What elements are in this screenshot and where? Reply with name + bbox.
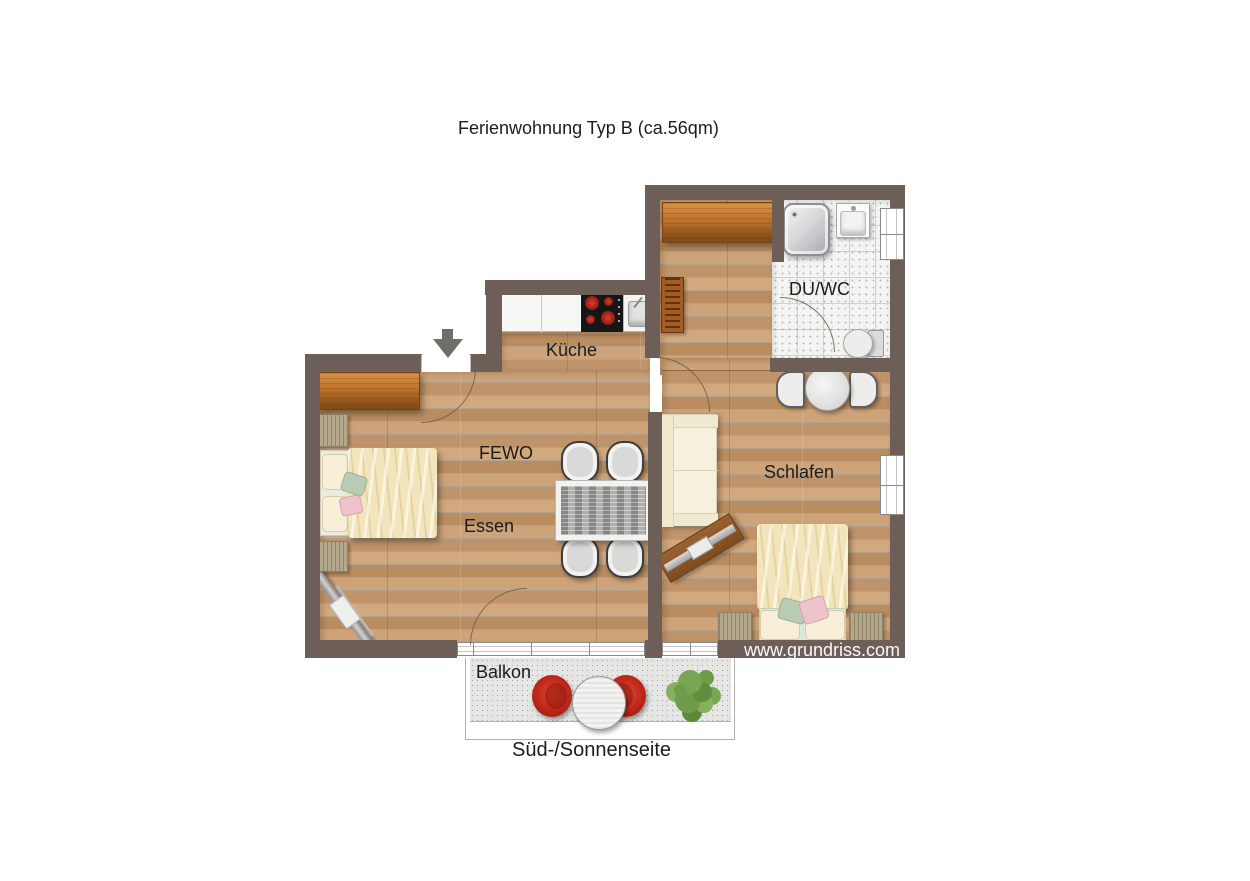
burner — [604, 297, 613, 306]
potted-plant — [674, 684, 686, 696]
cooktop-controls — [618, 299, 620, 301]
wall — [485, 280, 660, 295]
balcony-table — [572, 676, 626, 730]
nightstand — [318, 541, 348, 572]
bedroom-side-window — [880, 455, 904, 515]
wall — [772, 200, 784, 262]
sofa — [660, 414, 717, 526]
nightstand — [718, 612, 752, 642]
burner — [585, 296, 599, 310]
burner — [601, 311, 615, 325]
kitchen-label: Küche — [546, 340, 597, 361]
floor-plan: Ferienwohnung Typ B (ca.56qm) — [0, 0, 1250, 881]
living-wardrobe — [318, 372, 420, 410]
wall — [305, 354, 422, 372]
sink-basin — [840, 211, 866, 236]
balcony-chair — [532, 675, 572, 717]
cabinet-divider — [541, 293, 542, 333]
faucet-icon — [851, 206, 856, 211]
wall — [645, 185, 905, 200]
kitchen-counter — [500, 292, 655, 332]
toilet — [843, 326, 884, 360]
wall — [645, 200, 660, 358]
toilet-bowl — [843, 329, 873, 358]
shower-tray — [783, 203, 830, 256]
dining-chair — [561, 441, 599, 483]
bistro-table — [805, 366, 850, 411]
dining-label: Essen — [464, 516, 514, 537]
sofa-cushion-divider — [674, 470, 718, 471]
balcony-label: Balkon — [476, 662, 531, 683]
watermark: www.grundriss.com — [744, 640, 900, 661]
nightstand — [849, 612, 883, 642]
orientation-caption: Süd-/Sonnenseite — [512, 739, 671, 762]
sofa-armrest — [674, 415, 718, 428]
burner — [586, 315, 595, 324]
tub-chair — [776, 371, 805, 408]
entrance-arrow-icon — [433, 329, 463, 358]
bathroom-label: DU/WC — [789, 279, 850, 300]
sofa-backrest — [661, 415, 674, 527]
dining-table — [556, 481, 651, 540]
bedroom-label: Schlafen — [764, 462, 834, 483]
dining-chair — [606, 441, 644, 483]
wall — [648, 412, 662, 644]
wall — [305, 370, 320, 658]
hallway-wardrobe — [662, 202, 774, 243]
cooktop — [581, 293, 623, 332]
bathroom-side-window — [880, 208, 904, 260]
duvet — [757, 524, 848, 610]
plan-title: Ferienwohnung Typ B (ca.56qm) — [458, 118, 719, 139]
nightstand — [318, 414, 348, 447]
shoe-rack — [661, 277, 684, 333]
tub-chair — [849, 371, 878, 408]
living-label: FEWO — [479, 443, 533, 464]
bedroom-bed — [757, 524, 848, 642]
dining-chair — [561, 536, 599, 578]
wall — [305, 640, 457, 658]
dining-chair — [606, 536, 644, 578]
bedroom-window — [662, 642, 718, 656]
wall — [645, 640, 662, 658]
shower-drain-icon — [791, 211, 798, 218]
living-bed — [320, 448, 437, 538]
wall — [770, 358, 890, 372]
bathroom-sink — [836, 203, 870, 238]
